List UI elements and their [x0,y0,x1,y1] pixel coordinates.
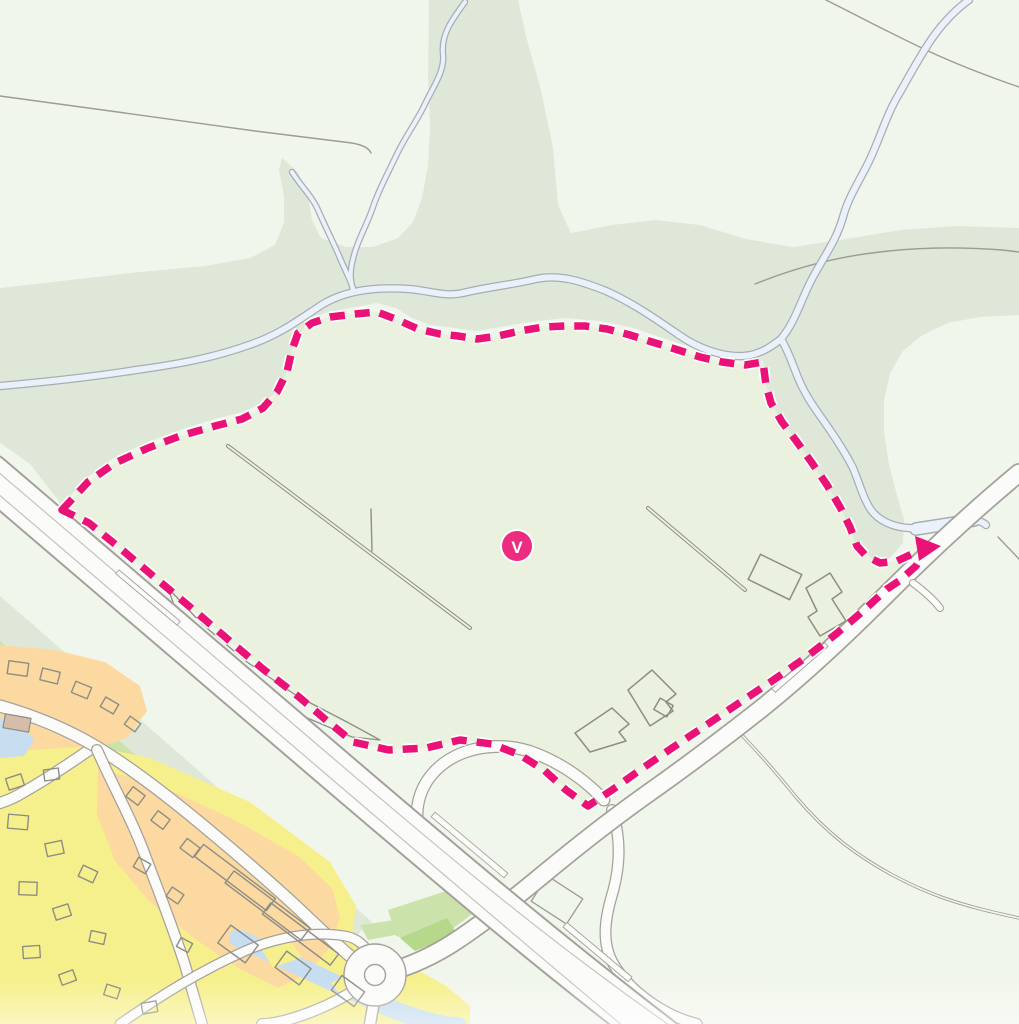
site-track-spur [371,509,372,551]
map-edge-fade [0,980,1019,1024]
map-marker-v-label: V [511,538,523,557]
map-canvas[interactable]: V [0,0,1019,1024]
map-viewport[interactable]: V [0,0,1019,1024]
